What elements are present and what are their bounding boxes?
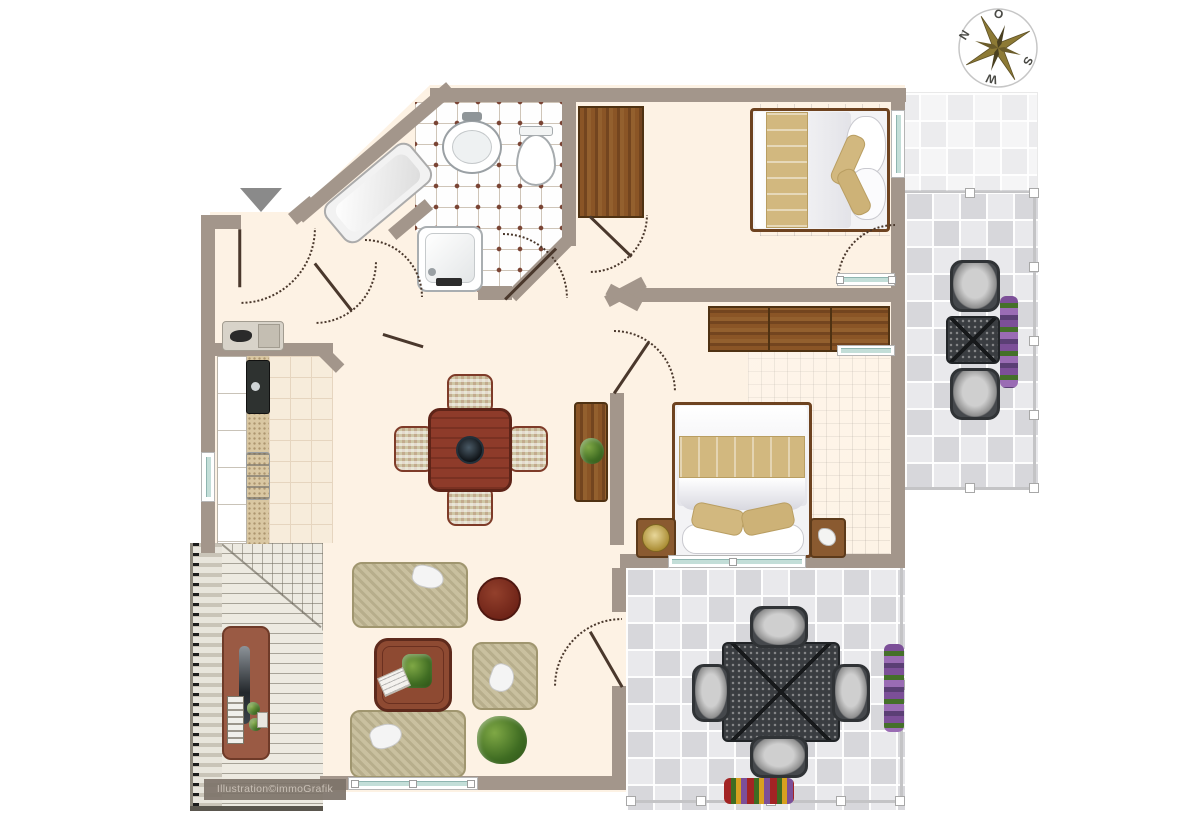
balcony-glass-door (837, 273, 895, 286)
shoe-cabinet-door (258, 324, 280, 348)
glass-panel-mid (837, 345, 895, 356)
deck-bottom-edge (190, 806, 323, 811)
window-kitchen-left (201, 452, 215, 502)
sink-basin (452, 130, 492, 164)
wardrobe-divider-2 (830, 308, 832, 350)
sideboard-plant (580, 438, 604, 464)
balcony-post-5 (1029, 483, 1039, 493)
shower-drain-icon (436, 278, 462, 286)
terrace-chair-left (692, 664, 730, 722)
shower-knob-icon (428, 268, 436, 276)
toilet-tank (519, 126, 553, 136)
balcony-chair-bottom (950, 368, 1000, 420)
stove (246, 452, 270, 500)
balcony-chair-top (950, 260, 1000, 312)
window-bedroom-top-right (891, 110, 905, 178)
shoes-icon (230, 330, 252, 342)
balcony-post (1029, 188, 1039, 198)
terrace-flower-box-right (884, 644, 904, 732)
balcony-post-3 (1029, 336, 1039, 346)
side-table-round (477, 577, 521, 621)
bed-mid-blanket (679, 436, 805, 478)
floor-plant (477, 716, 527, 764)
door-handle (836, 276, 844, 284)
terrace-post-2 (696, 796, 706, 806)
window-glass (672, 559, 802, 564)
window-glass (896, 115, 901, 173)
window-bedroom-mid (668, 555, 806, 568)
terrace-post (626, 796, 636, 806)
terrace-post-4 (836, 796, 846, 806)
terrace-chair-bottom (750, 736, 808, 778)
sofa-bottom (350, 710, 466, 778)
wall-top (430, 88, 906, 102)
balcony-post-6 (965, 188, 975, 198)
terrace-table (722, 642, 840, 742)
balcony-post-2 (1029, 262, 1039, 272)
sideboard-box-icon (257, 712, 268, 728)
wall-right-lower (891, 302, 905, 568)
entrance-arrow-icon (240, 188, 282, 212)
balcony-table (946, 316, 1000, 364)
window-handle (729, 558, 737, 566)
wall-left (201, 215, 215, 553)
compass-rose: O N S W (952, 6, 1044, 90)
terrace-flower-box-bottom (724, 778, 794, 804)
table-bowl-icon (456, 436, 484, 464)
sofa-top (352, 562, 468, 628)
bed-top-blanket (766, 112, 808, 228)
kitchen-cabinets (217, 356, 247, 544)
wall-bath-right (562, 88, 576, 246)
window-handle-mid (409, 780, 417, 788)
kitchen-floor (269, 356, 333, 543)
wardrobe-divider (768, 308, 770, 350)
roof-outline-overlay (891, 92, 1038, 192)
balcony-post-7 (965, 483, 975, 493)
entrance-door-arc (164, 152, 316, 304)
door-glass (841, 277, 891, 282)
terrace-chair-right (832, 664, 870, 722)
stairs-ticks (193, 543, 199, 811)
door-handle-2 (888, 276, 896, 284)
balcony-flower-box (1000, 296, 1018, 388)
dining-chair-right (508, 426, 548, 472)
sink-faucet-icon (462, 112, 482, 121)
window-living (348, 777, 478, 790)
bedroom-top-wardrobe (578, 106, 644, 218)
terrace-chair-top (750, 606, 808, 648)
window-handle-right (467, 780, 475, 788)
dining-chair-bottom (447, 486, 493, 526)
terrace-post-5 (895, 796, 905, 806)
shelf-books-icon (227, 696, 244, 744)
nightstand-item-icon (818, 528, 836, 546)
wall-mid-horizontal (628, 288, 905, 302)
wall-entry-left (201, 215, 241, 229)
window-handle (351, 780, 359, 788)
kitchen-faucet-icon (251, 382, 260, 391)
floor-plan-canvas: O N S W Illustration©immoGrafik (0, 0, 1200, 831)
wall-living-right-a (612, 568, 626, 612)
door-glass (841, 348, 891, 353)
wall-living-right-b (612, 686, 626, 783)
window-glass (206, 457, 211, 497)
watermark-label: Illustration©immoGrafik (204, 779, 346, 800)
wall-stub-dining (610, 393, 624, 545)
alarm-clock-icon (642, 524, 670, 552)
balcony-post-4 (1029, 410, 1039, 420)
